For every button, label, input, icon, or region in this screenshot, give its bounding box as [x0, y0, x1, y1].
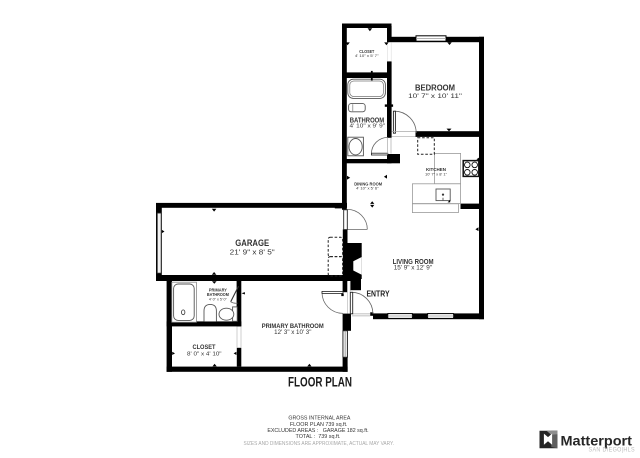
svg-text:4' 10" x 5' 6": 4' 10" x 5' 6" [356, 186, 379, 190]
svg-text:SIZES AND DIMENSIONS ARE APPRO: SIZES AND DIMENSIONS ARE APPROXIMATE, AC… [243, 441, 394, 447]
svg-text:KITCHEN: KITCHEN [426, 167, 447, 172]
svg-text:4' 10" x 5' 7": 4' 10" x 5' 7" [355, 54, 379, 58]
svg-text:15' 9" x 12' 9": 15' 9" x 12' 9" [394, 266, 432, 272]
svg-text:10' 7" x 10' 11": 10' 7" x 10' 11" [408, 93, 463, 100]
svg-text:FLOOR PLAN 739 sq.ft.: FLOOR PLAN 739 sq.ft. [290, 422, 348, 428]
svg-text:TOTAL : 739 sq.ft.: TOTAL : 739 sq.ft. [296, 434, 341, 440]
svg-text:BEDROOM: BEDROOM [415, 83, 455, 93]
svg-text:GARAGE: GARAGE [235, 238, 269, 248]
svg-text:SAN DIEGO|HLS: SAN DIEGO|HLS [589, 446, 636, 453]
svg-text:8' 0" x 4' 10": 8' 0" x 4' 10" [187, 351, 222, 357]
svg-text:12' 3" x 10' 3": 12' 3" x 10' 3" [274, 330, 311, 336]
svg-text:CLOSET: CLOSET [193, 344, 216, 351]
svg-text:GROSS INTERNAL AREA: GROSS INTERNAL AREA [288, 416, 350, 422]
svg-text:PRIMARY BATHROOM: PRIMARY BATHROOM [262, 323, 324, 330]
svg-text:FLOOR PLAN: FLOOR PLAN [288, 375, 352, 391]
svg-text:21' 9" x 8' 5": 21' 9" x 8' 5" [230, 250, 276, 257]
svg-text:ENTRY: ENTRY [366, 289, 389, 299]
svg-text:4' 10" x 9' 9": 4' 10" x 9' 9" [350, 124, 386, 130]
svg-text:4' 0" x 5' 0": 4' 0" x 5' 0" [209, 298, 228, 302]
svg-text:10' 7" x 8' 1": 10' 7" x 8' 1" [425, 172, 448, 176]
svg-text:BATHROOM: BATHROOM [207, 292, 229, 297]
